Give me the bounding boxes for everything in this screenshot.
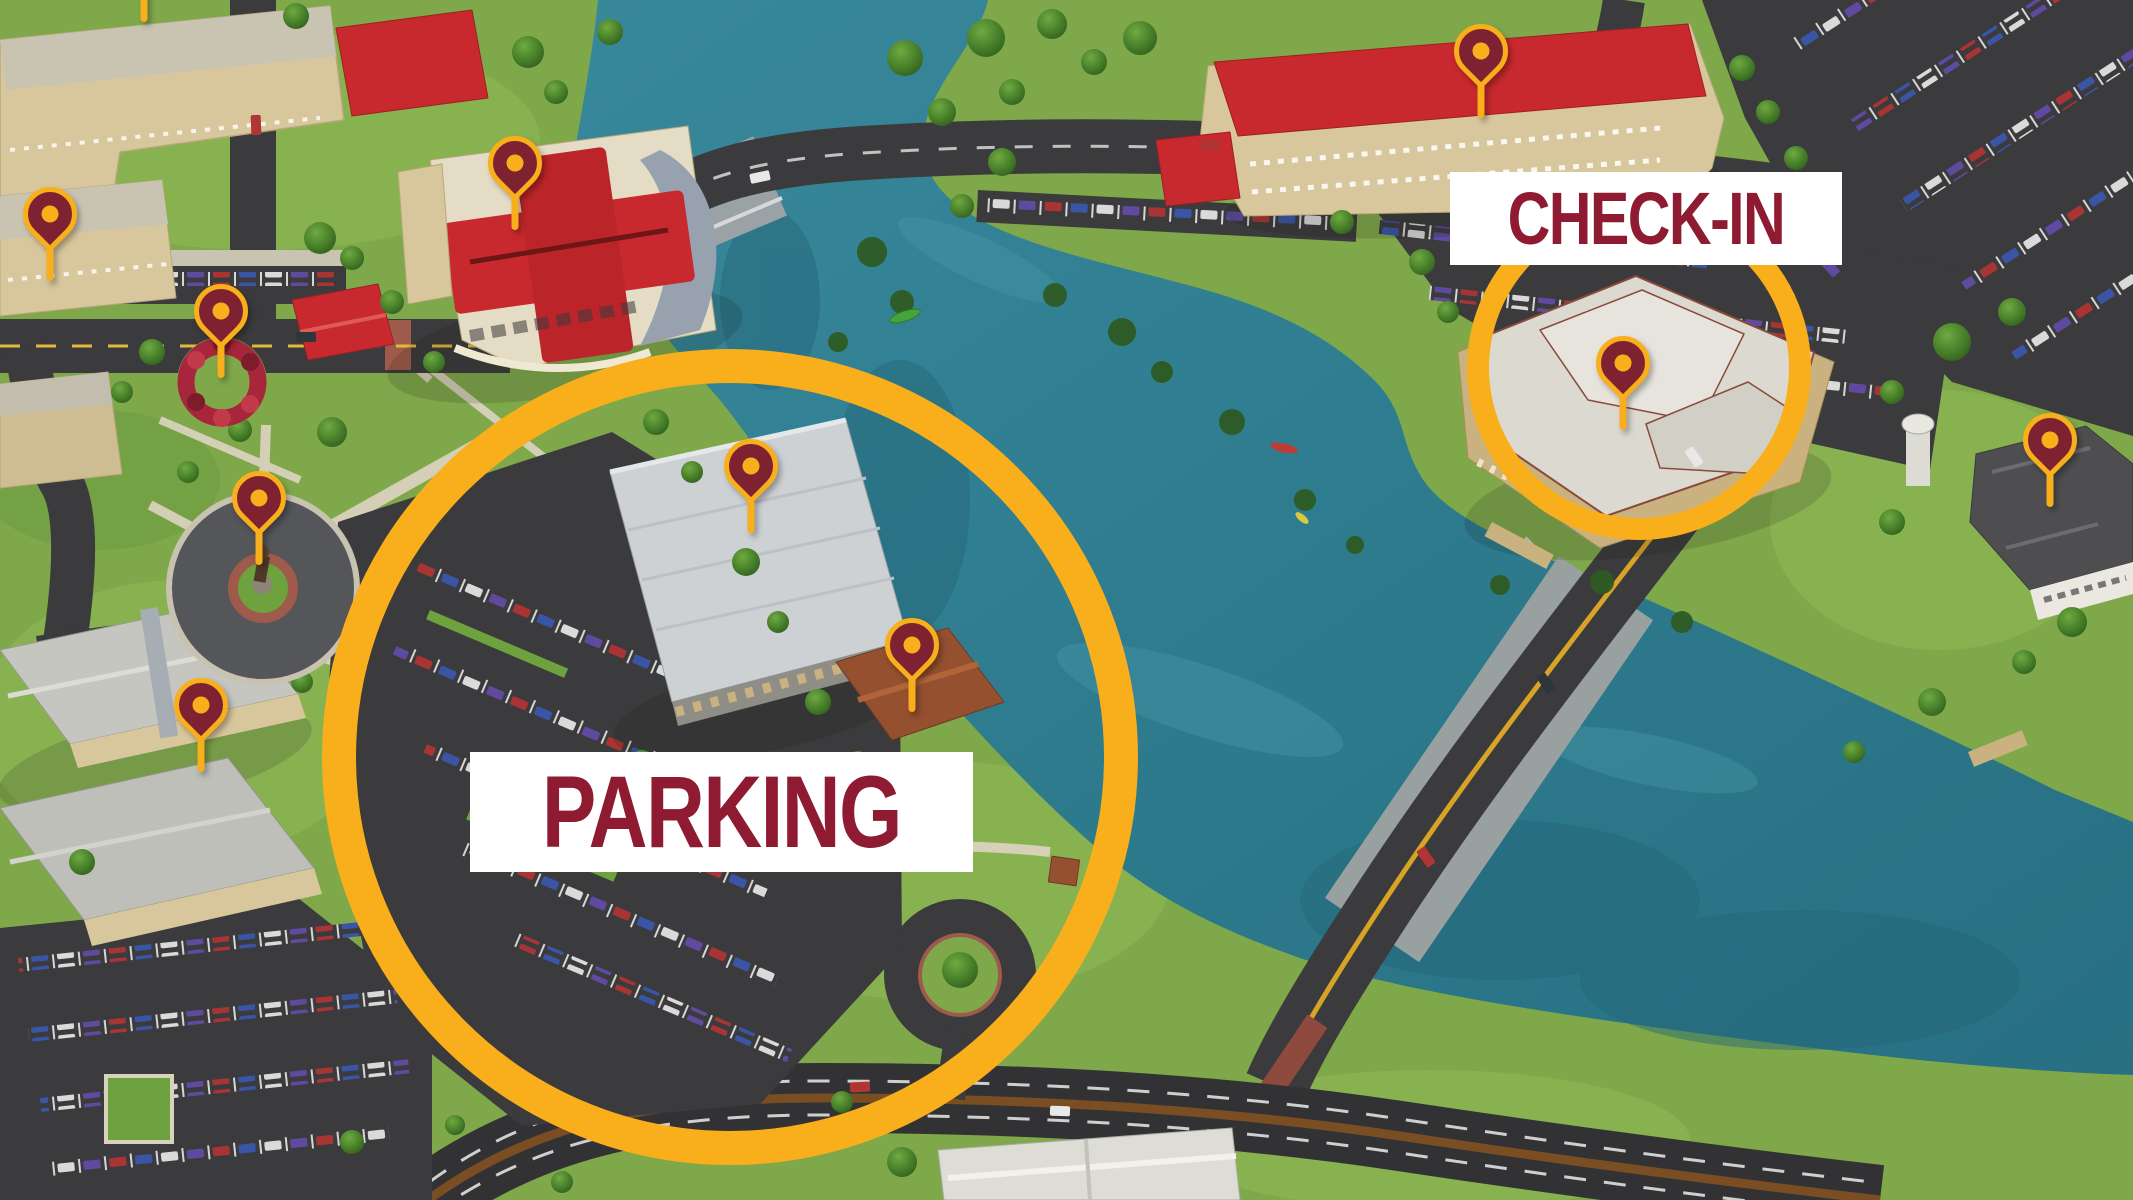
building-west-residence-hall — [0, 180, 176, 316]
campus-map: PARKING CHECK-IN — [0, 0, 2133, 1200]
building-west-small-hall — [0, 372, 122, 488]
checkin-label-text: CHECK-IN — [1508, 176, 1785, 261]
parking-label-text: PARKING — [542, 754, 901, 871]
checkin-label: CHECK-IN — [1450, 172, 1842, 265]
parking-label: PARKING — [470, 752, 973, 872]
